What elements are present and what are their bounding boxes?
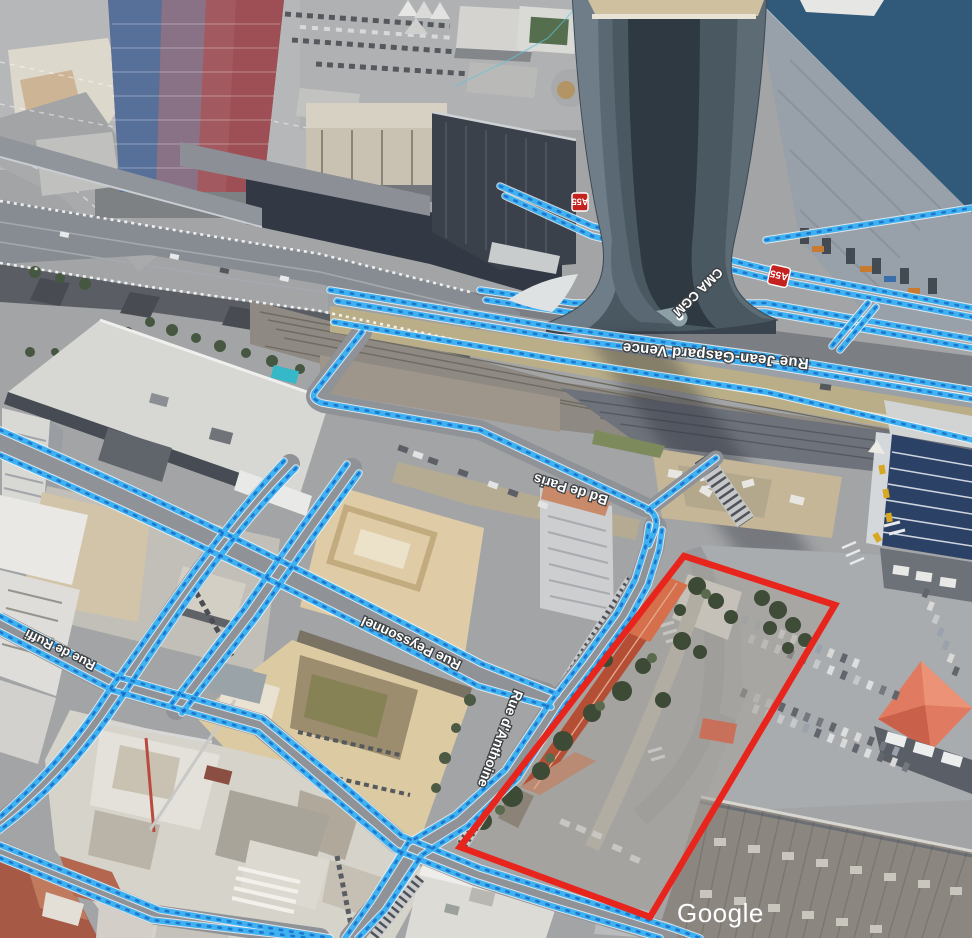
svg-text:Google: Google bbox=[677, 898, 764, 928]
svg-text:A55: A55 bbox=[572, 197, 589, 207]
